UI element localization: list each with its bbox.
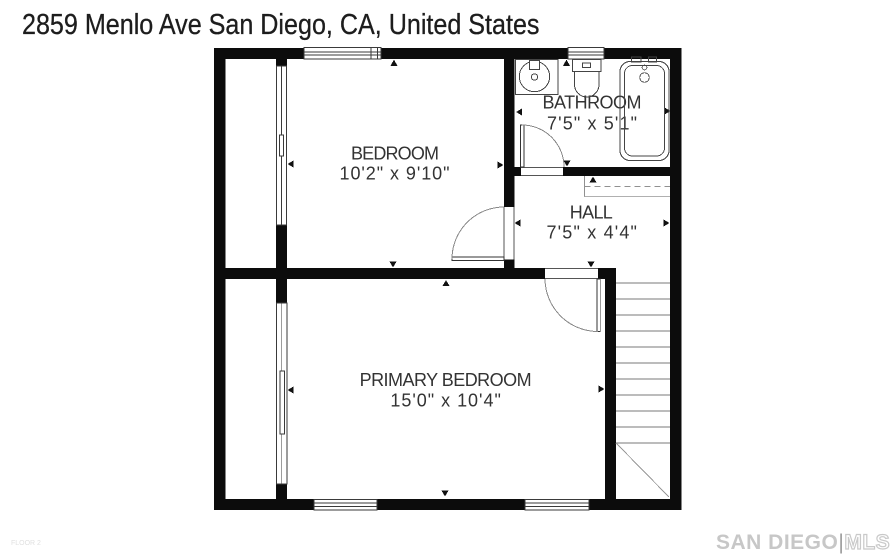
svg-text:10'2" x 9'10": 10'2" x 9'10" xyxy=(340,164,450,184)
svg-text:7'5" x 5'1": 7'5" x 5'1" xyxy=(547,114,637,134)
svg-text:PRIMARY BEDROOM: PRIMARY BEDROOM xyxy=(360,370,532,390)
svg-text:HALL: HALL xyxy=(570,203,613,223)
svg-text:7'5" x 4'4": 7'5" x 4'4" xyxy=(546,223,637,243)
svg-text:15'0" x 10'4": 15'0" x 10'4" xyxy=(390,391,500,411)
svg-text:BEDROOM: BEDROOM xyxy=(351,144,439,164)
